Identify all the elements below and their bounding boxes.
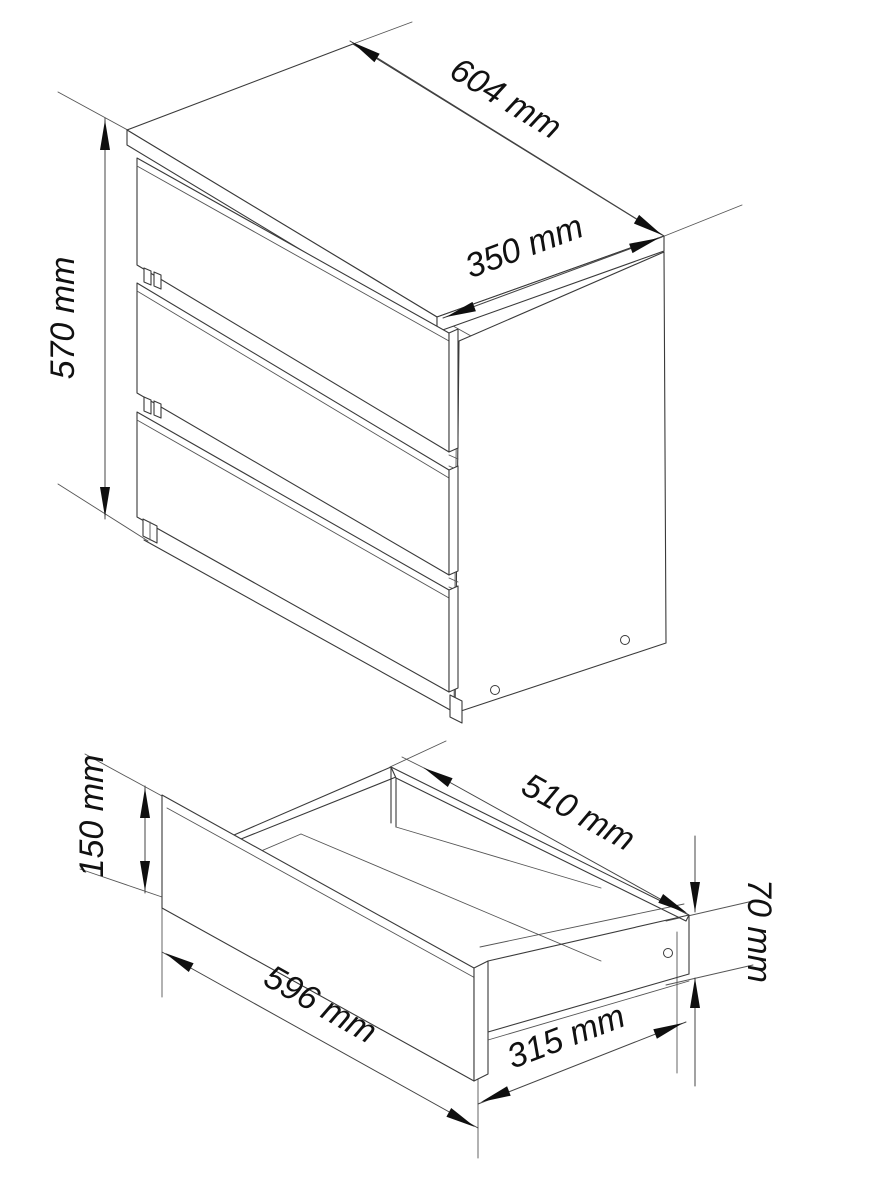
screw-hole bbox=[664, 949, 673, 958]
dimension-label-side-height: 70 mm bbox=[740, 879, 778, 983]
cabinet-figure: 570 mm 604 mm 350 mm bbox=[44, 22, 742, 723]
drawing-canvas: 570 mm 604 mm 350 mm bbox=[0, 0, 875, 1200]
drawer-figure: 150 mm 510 mm 596 mm 315 mm bbox=[73, 741, 778, 1158]
dimension-label-height: 570 mm bbox=[44, 257, 82, 380]
dimension-label-inner-height: 150 mm bbox=[73, 755, 111, 878]
cabinet-side-panel bbox=[454, 252, 666, 713]
drawer-left-wall bbox=[234, 767, 396, 857]
dimension-inner-depth: 315 mm bbox=[478, 997, 686, 1104]
dimension-inner-height: 150 mm bbox=[73, 755, 150, 893]
dimension-drawer-depth: 510 mm bbox=[424, 766, 689, 915]
drawer-front-panel bbox=[162, 795, 488, 1081]
technical-drawing: 570 mm 604 mm 350 mm bbox=[0, 0, 875, 1200]
dimension-height: 570 mm bbox=[44, 118, 110, 519]
dimension-side-height: 70 mm bbox=[690, 836, 778, 1086]
